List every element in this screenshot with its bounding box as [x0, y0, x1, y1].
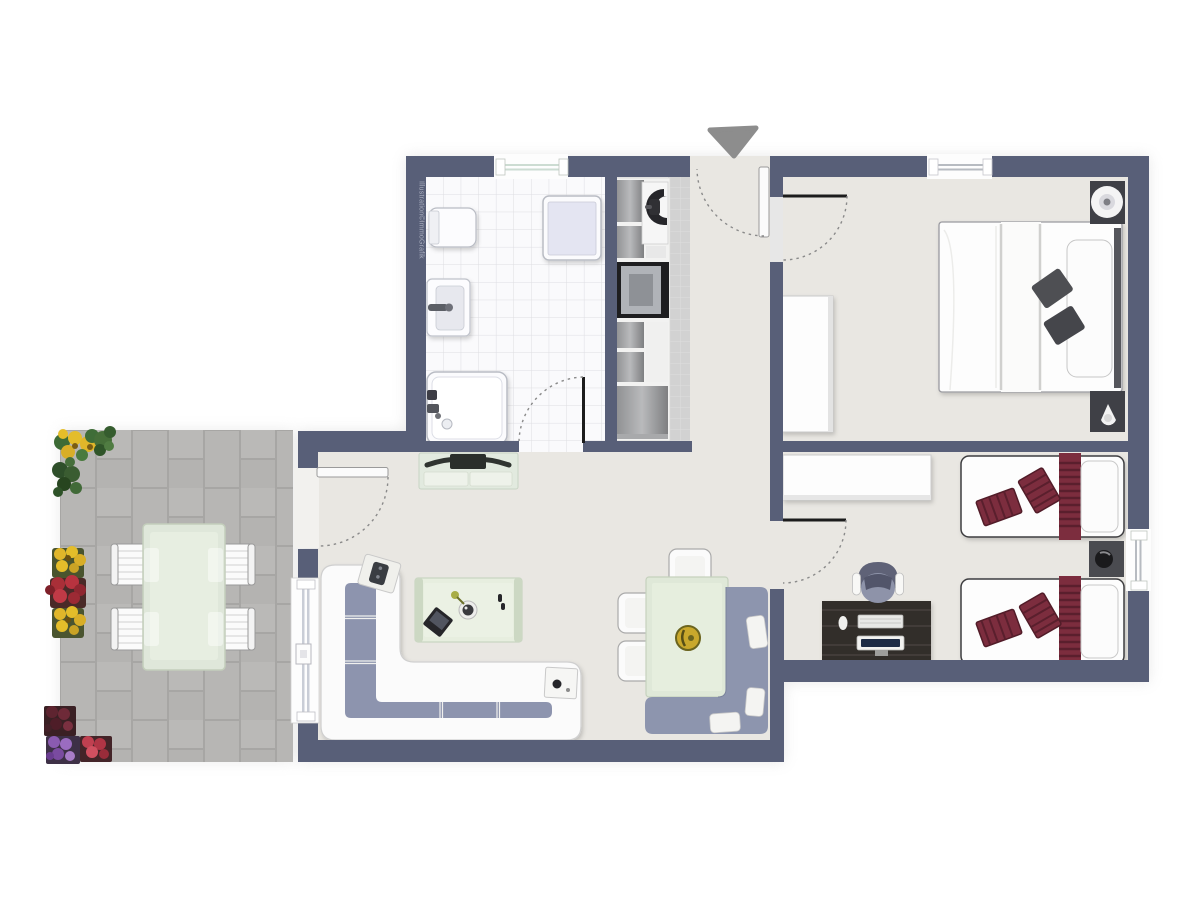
svg-text:Illustration©ImmoGrafik: Illustration©ImmoGrafik	[418, 181, 426, 259]
